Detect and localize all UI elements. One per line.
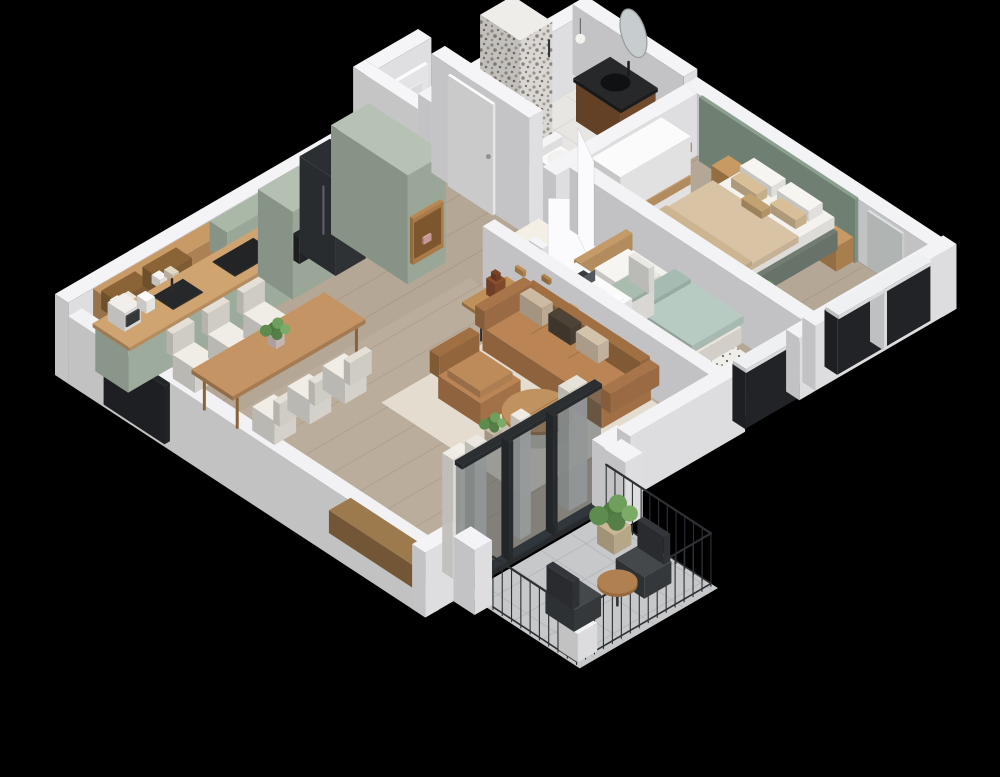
vanity-basin [601, 74, 631, 92]
apartment-3d-floor-plan [0, 0, 1000, 777]
glass-mullion-1 [501, 435, 513, 561]
bathroom-door-handle [486, 154, 491, 159]
balcony-stub-left [454, 526, 493, 615]
glass-mullion-2 [546, 410, 558, 536]
pendant-lamp [575, 34, 585, 44]
scene-background [0, 0, 1000, 777]
balcony-table-top [597, 569, 638, 593]
